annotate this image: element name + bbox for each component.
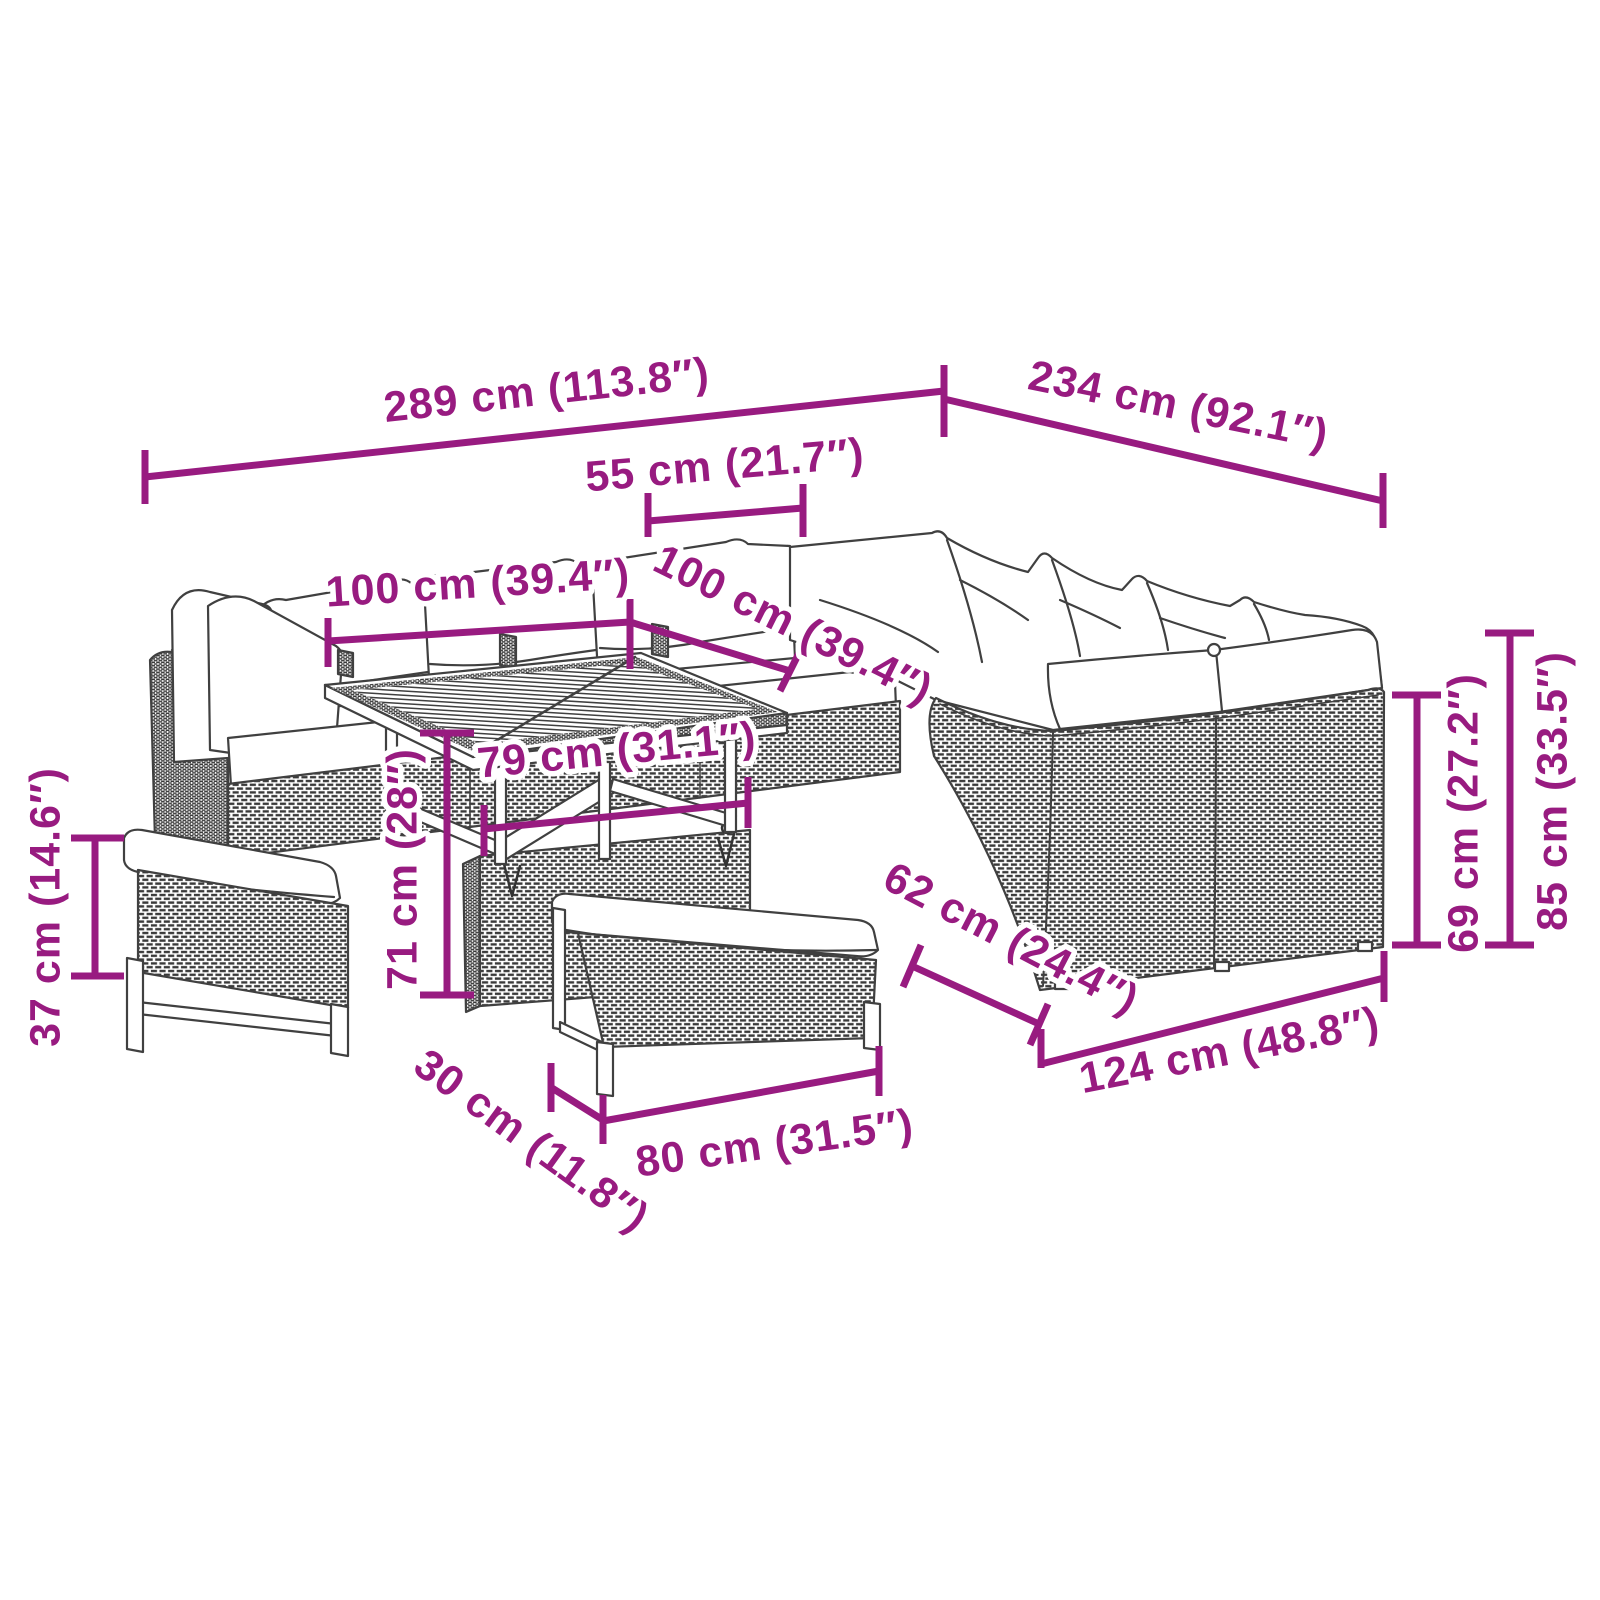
- svg-text:85 cm (33.5″): 85 cm (33.5″): [1528, 651, 1576, 931]
- svg-text:37 cm (14.6″): 37 cm (14.6″): [21, 767, 69, 1047]
- svg-text:71 cm (28″): 71 cm (28″): [378, 748, 426, 990]
- svg-text:69 cm (27.2″): 69 cm (27.2″): [1439, 673, 1487, 953]
